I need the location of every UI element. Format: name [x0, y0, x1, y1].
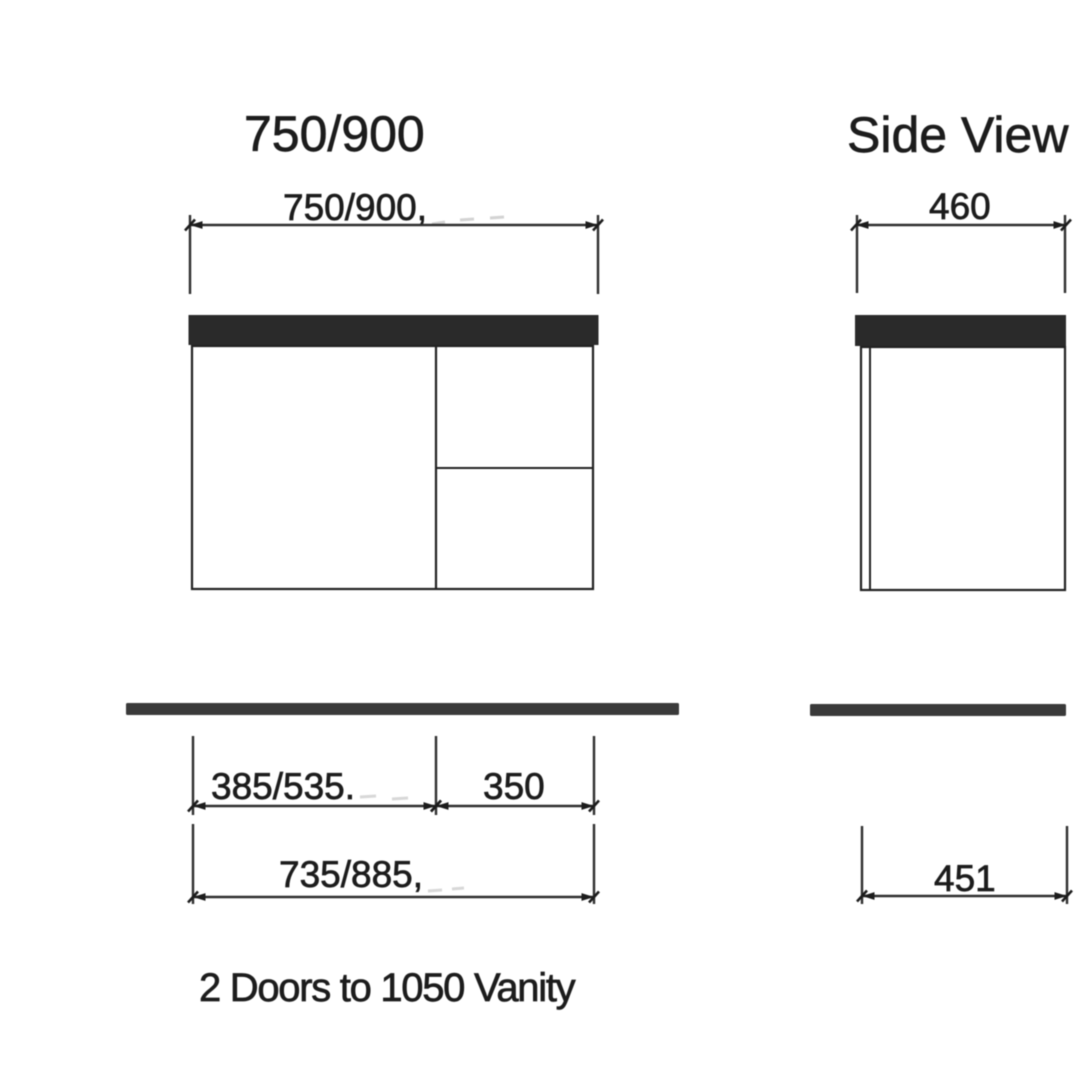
svg-text:350: 350: [483, 766, 545, 807]
svg-text:451: 451: [934, 858, 996, 899]
svg-text:2 Doors to 1050 Vanity: 2 Doors to 1050 Vanity: [199, 966, 576, 1010]
svg-text:Side View: Side View: [847, 107, 1069, 163]
svg-text:460: 460: [929, 186, 991, 227]
svg-text:750/900: 750/900: [244, 106, 425, 162]
svg-text:735/885,: 735/885,: [279, 854, 423, 895]
svg-text:385/535.: 385/535.: [211, 766, 355, 807]
svg-text:750/900,: 750/900,: [283, 187, 427, 228]
